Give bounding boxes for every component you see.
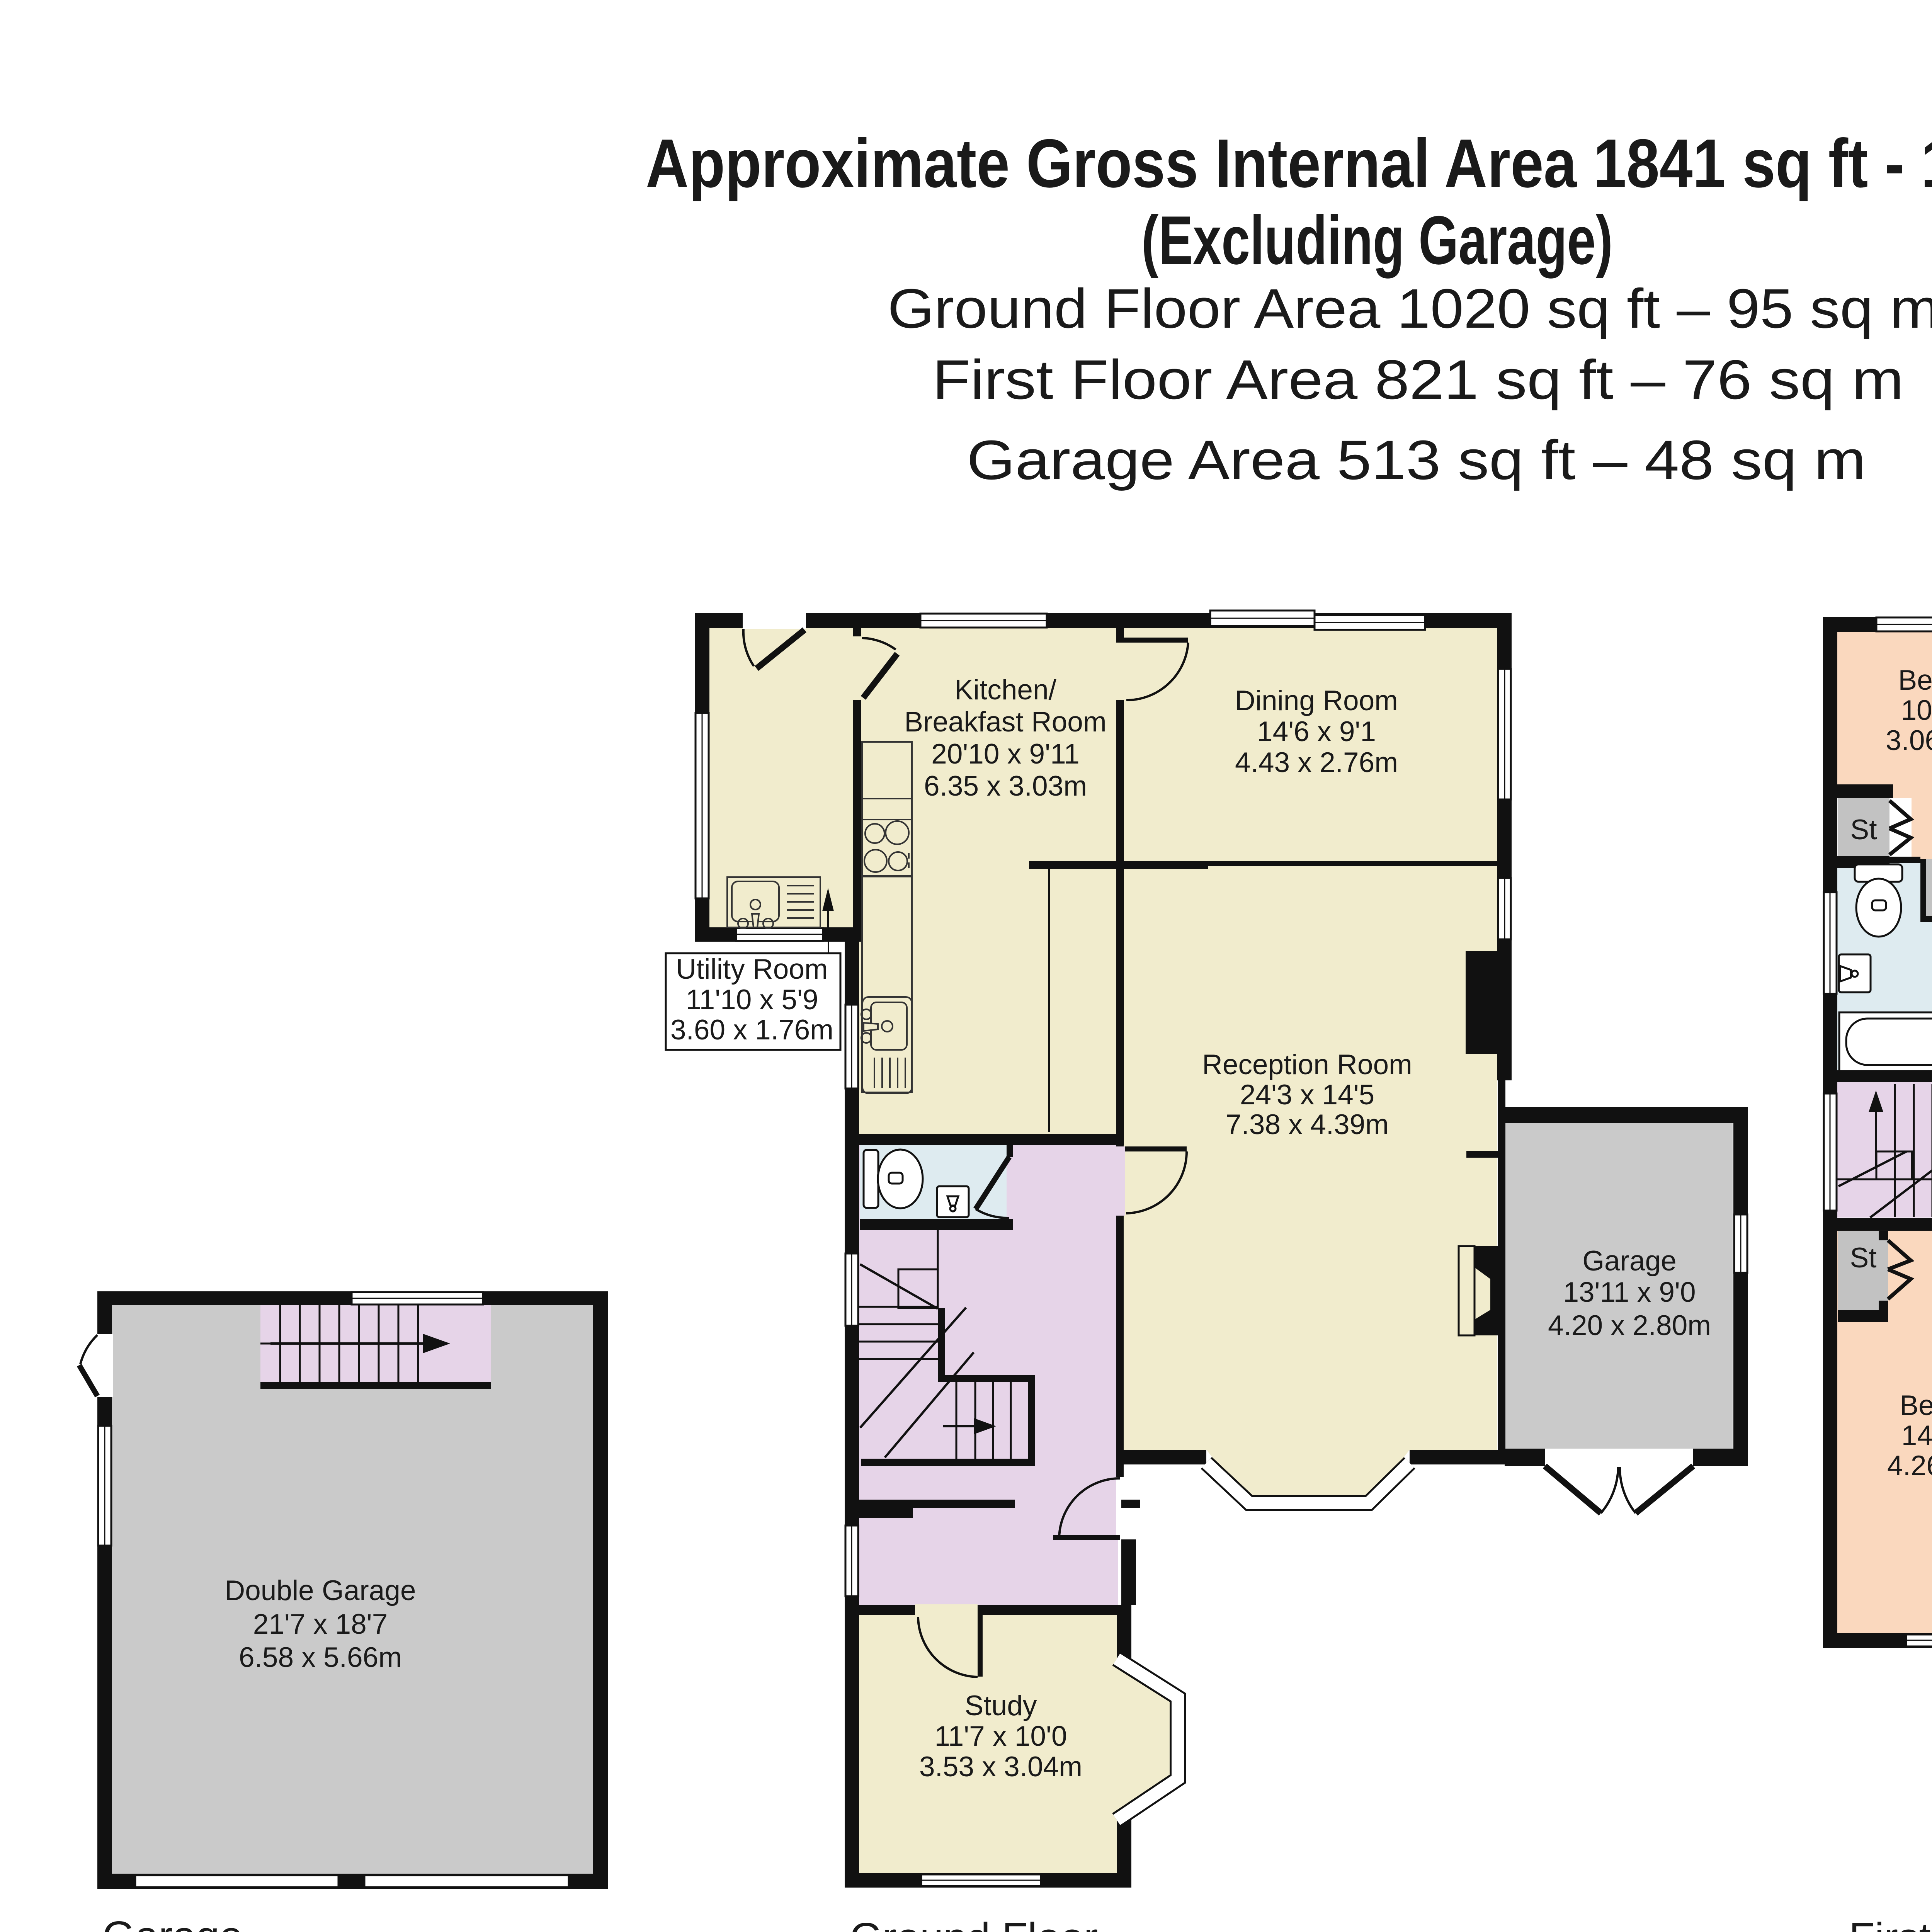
svg-text:Double Garage: Double Garage — [224, 1575, 416, 1606]
svg-text:First Floor: First Floor — [1849, 1914, 1932, 1932]
svg-text:Breakfast Room: Breakfast Room — [904, 706, 1106, 738]
svg-text:Reception Room: Reception Room — [1202, 1049, 1412, 1080]
svg-text:3.06 x 2.71m: 3.06 x 2.71m — [1886, 725, 1932, 756]
svg-text:Kitchen/: Kitchen/ — [954, 674, 1056, 706]
svg-text:7.38 x 4.39m: 7.38 x 4.39m — [1226, 1109, 1389, 1140]
svg-text:4.43 x 2.76m: 4.43 x 2.76m — [1235, 747, 1398, 778]
svg-text:13'11 x 9'0: 13'11 x 9'0 — [1563, 1277, 1696, 1308]
svg-text:6.58 x 5.66m: 6.58 x 5.66m — [239, 1642, 402, 1673]
svg-text:First Floor Area 821 sq ft – 7: First Floor Area 821 sq ft – 76 sq m — [932, 349, 1904, 411]
svg-text:6.35 x 3.03m: 6.35 x 3.03m — [924, 770, 1087, 802]
svg-text:4.26 x 3.06m: 4.26 x 3.06m — [1887, 1450, 1932, 1481]
svg-text:Bedroom 4: Bedroom 4 — [1898, 665, 1932, 696]
svg-text:20'10 x 9'11: 20'10 x 9'11 — [931, 738, 1080, 770]
svg-text:3.60 x 1.76m: 3.60 x 1.76m — [670, 1014, 833, 1046]
svg-text:24'3 x 14'5: 24'3 x 14'5 — [1240, 1079, 1375, 1111]
svg-text:St: St — [1850, 1242, 1877, 1274]
svg-text:Bedroom 3: Bedroom 3 — [1900, 1390, 1932, 1421]
svg-text:11'7 x 10'0: 11'7 x 10'0 — [934, 1721, 1067, 1752]
svg-text:14'6 x 9'1: 14'6 x 9'1 — [1257, 716, 1376, 747]
svg-text:(Excluding Garage): (Excluding Garage) — [1141, 202, 1613, 279]
svg-text:4.20 x 2.80m: 4.20 x 2.80m — [1548, 1310, 1711, 1341]
svg-text:10'0 x 8'11: 10'0 x 8'11 — [1901, 695, 1932, 726]
svg-text:21'7 x 18'7: 21'7 x 18'7 — [253, 1609, 388, 1640]
svg-text:Garage: Garage — [102, 1913, 243, 1932]
svg-text:Utility Room: Utility Room — [676, 954, 828, 985]
svg-text:Ground Floor Area 1020 sq ft –: Ground Floor Area 1020 sq ft – 95 sq m — [888, 277, 1932, 340]
svg-text:Garage: Garage — [1582, 1245, 1677, 1277]
svg-text:Approximate Gross Internal Are: Approximate Gross Internal Area 1841 sq … — [646, 125, 1932, 202]
svg-text:St: St — [1850, 814, 1877, 845]
svg-text:Dining Room: Dining Room — [1235, 685, 1398, 716]
svg-text:Garage Area 513 sq ft – 48 sq: Garage Area 513 sq ft – 48 sq m — [967, 429, 1866, 491]
svg-text:14'0 x 10'0: 14'0 x 10'0 — [1901, 1420, 1932, 1451]
svg-text:Ground Floor: Ground Floor — [850, 1914, 1098, 1932]
svg-text:Study: Study — [965, 1690, 1037, 1721]
svg-text:3.53 x 3.04m: 3.53 x 3.04m — [919, 1751, 1082, 1782]
svg-text:11'10 x 5'9: 11'10 x 5'9 — [685, 984, 818, 1015]
